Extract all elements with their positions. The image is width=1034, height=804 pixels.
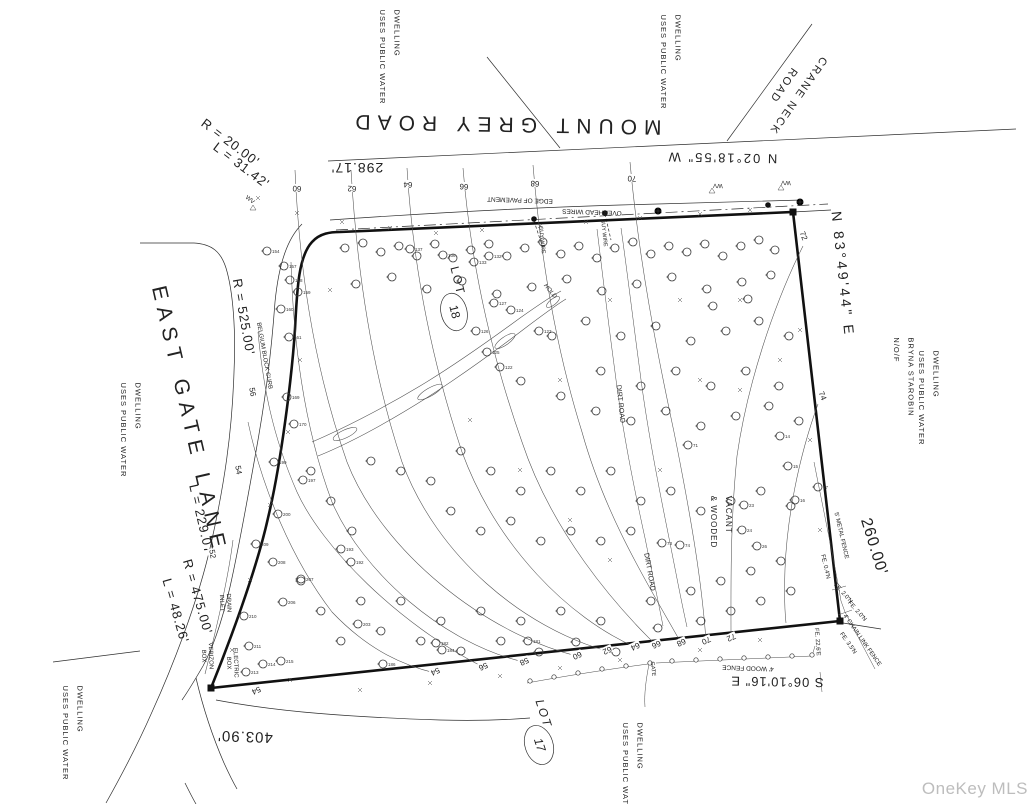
tree-symbol	[676, 541, 684, 549]
tree-symbol	[485, 252, 493, 260]
tree-symbol	[503, 252, 511, 260]
tree-symbol	[667, 487, 675, 495]
tree-symbol	[709, 302, 717, 310]
watermark: OneKey MLS	[922, 778, 1028, 800]
spot-elevation-x	[698, 378, 702, 382]
tree-symbol	[457, 647, 465, 655]
tree-symbol	[477, 527, 485, 535]
tree-symbol	[537, 537, 545, 545]
tree-symbol	[297, 577, 305, 585]
tree-tag-number: 207	[306, 577, 314, 582]
tree-symbol	[277, 657, 285, 665]
tree-symbol	[285, 333, 293, 341]
tree-tag-number: 127	[499, 301, 507, 306]
tree-symbol	[753, 542, 761, 550]
tree-symbol	[703, 285, 711, 293]
tree-tag-number: 170	[299, 422, 307, 427]
tree-symbol	[496, 363, 504, 371]
vacant-wooded-label: VACANT & WOODED	[706, 496, 736, 548]
tree-tag-number: 214	[268, 662, 276, 667]
tree-tag-number: 203	[363, 622, 371, 627]
tree-tag-number: 132	[494, 254, 502, 259]
tree-symbol	[367, 457, 375, 465]
tree-symbol	[487, 467, 495, 475]
swale-blob	[493, 331, 517, 351]
bearing-south-line: S 06°10'16" E	[730, 672, 824, 691]
contour-line-66	[463, 168, 656, 645]
tree-symbol	[277, 305, 285, 313]
tree-symbol	[742, 367, 750, 375]
tree-symbol	[432, 639, 440, 647]
tree-symbol	[467, 246, 475, 254]
spot-elevation-x	[568, 518, 572, 522]
tree-symbol	[547, 467, 555, 475]
fence-post	[790, 654, 794, 658]
tree-symbol	[740, 501, 748, 509]
spot-elevation-x	[428, 681, 432, 685]
street-label-mount-grey-road: MOUNT GREY ROAD	[348, 108, 662, 141]
wood-fence-label: 4' WOOD FENCE	[722, 662, 774, 672]
spot-elevation-x	[295, 211, 299, 215]
tree-symbol	[771, 246, 779, 254]
tree-tag-number: 71	[693, 443, 699, 448]
tree-tag-number: 186	[388, 662, 396, 667]
tree-symbol	[777, 557, 785, 565]
tree-symbol	[377, 627, 385, 635]
contour-line-56	[258, 332, 483, 667]
tree-tag-number: 192	[356, 560, 364, 565]
tree-symbol	[732, 412, 740, 420]
tree-symbol	[662, 407, 670, 415]
tree-tag-number: 206	[288, 600, 296, 605]
tree-symbol	[485, 240, 493, 248]
tree-symbol	[755, 236, 763, 244]
tree-symbol	[470, 258, 478, 266]
tree-symbol	[647, 597, 655, 605]
spot-elevation-x	[558, 666, 562, 670]
tree-symbol	[557, 392, 565, 400]
tree-symbol	[658, 539, 666, 547]
spot-elevation-x	[358, 688, 362, 692]
tree-symbol	[359, 239, 367, 247]
tree-symbol	[535, 327, 543, 335]
tree-symbol	[497, 637, 505, 645]
tree-symbol	[593, 254, 601, 262]
tree-symbol	[447, 507, 455, 515]
tree-tag-number: 122	[505, 365, 513, 370]
electric-box-label: ELECTRIC BOX	[223, 648, 238, 678]
tree-symbol	[341, 244, 349, 252]
tree-symbol	[597, 617, 605, 625]
tree-symbol	[423, 285, 431, 293]
tree-tag-number: 124	[516, 308, 524, 313]
fence-post	[552, 675, 556, 679]
tree-tag-number: 209	[261, 542, 269, 547]
survey-map: 1541571581591601611691701991972002092082…	[0, 0, 1034, 804]
tree-symbol	[524, 637, 532, 645]
tree-symbol	[597, 367, 605, 375]
contour-line-60	[295, 170, 577, 656]
tree-tag-number: 16	[800, 498, 806, 503]
tree-symbol	[697, 422, 705, 430]
tree-symbol	[397, 467, 405, 475]
tree-symbol	[672, 367, 680, 375]
tree-symbol	[701, 240, 709, 248]
contour-elevation-label: 64	[402, 180, 413, 189]
fence-post	[528, 679, 532, 683]
spot-elevation-x	[558, 378, 562, 382]
tree-symbol	[379, 660, 387, 668]
dimension-road-frontage: 298.17'	[331, 159, 384, 177]
tree-tag-number: 200	[283, 512, 291, 517]
tree-symbol	[814, 483, 822, 491]
tree-symbol	[507, 306, 515, 314]
tree-symbol	[575, 242, 583, 250]
tree-tag-number: 123	[544, 329, 552, 334]
tree-symbol	[717, 577, 725, 585]
tree-symbol	[757, 597, 765, 605]
tree-symbol	[299, 476, 307, 484]
lot17-division-line	[216, 700, 530, 720]
contour-line-54	[248, 422, 435, 673]
corner-monuments	[208, 209, 844, 692]
tree-symbol	[263, 247, 271, 255]
tree-symbol	[652, 322, 660, 330]
tree-symbol	[627, 417, 635, 425]
tree-tag-number: 161	[294, 335, 302, 340]
tree-symbol	[348, 527, 356, 535]
spot-elevation-x	[738, 298, 742, 302]
tree-symbol	[437, 617, 445, 625]
contour-elevation-label: 56	[247, 386, 257, 398]
tree-symbol	[637, 497, 645, 505]
corner-monument	[790, 209, 797, 216]
tree-symbol	[597, 537, 605, 545]
dwelling-note-top-mid: DWELLING USES PUBLIC WATER	[656, 15, 685, 110]
fence-post	[624, 664, 628, 668]
tree-symbol	[337, 637, 345, 645]
tree-symbol	[787, 587, 795, 595]
spot-elevation-x	[808, 438, 812, 442]
tree-symbol	[683, 248, 691, 256]
spot-elevation-x	[798, 328, 802, 332]
tree-symbol	[557, 250, 565, 258]
bearing-north-line: N 02°18'55" W	[667, 148, 778, 167]
wood-fence-line	[527, 664, 648, 683]
tree-tag-number: 15	[793, 464, 799, 469]
tree-tag-number: 182	[441, 641, 449, 646]
spot-elevation-x	[738, 388, 742, 392]
dirt-road-edge-west	[597, 229, 663, 626]
tree-symbol	[259, 660, 267, 668]
tree-tag-number: 197	[308, 478, 316, 483]
tree-symbol	[290, 420, 298, 428]
spot-elevation-x	[256, 196, 260, 200]
tree-symbol	[697, 617, 705, 625]
tree-symbol	[577, 487, 585, 495]
water-valve-label-2: WV	[713, 180, 723, 188]
tree-symbol	[647, 250, 655, 258]
dwelling-note-left: DWELLING USES PUBLIC WATER	[116, 383, 145, 478]
tree-symbol	[252, 540, 260, 548]
spot-elevation-x	[748, 208, 752, 212]
contour-elevation-label: 60	[291, 184, 302, 193]
tree-symbol	[567, 527, 575, 535]
tree-symbol	[490, 299, 498, 307]
swale-blob	[416, 382, 444, 403]
tree-tag-number: 154	[272, 249, 280, 254]
tree-symbol	[270, 458, 278, 466]
utility-pole	[765, 202, 771, 208]
dwelling-note-right: DWELLING USES PUBLIC WATER	[914, 351, 943, 446]
tree-tag-number: 181	[533, 639, 541, 644]
tree-symbol	[327, 497, 335, 505]
tree-symbol	[738, 278, 746, 286]
fence-post	[718, 657, 722, 661]
tree-symbol	[286, 276, 294, 284]
fence-post	[742, 656, 746, 660]
tree-symbol	[784, 462, 792, 470]
tree-symbol	[507, 517, 515, 525]
tree-symbol	[654, 624, 662, 632]
tree-symbol	[629, 238, 637, 246]
dimension-south-side: 403.90'	[217, 725, 273, 746]
tree-tag-number: 23	[749, 503, 755, 508]
tree-symbol	[431, 240, 439, 248]
tree-symbol	[617, 332, 625, 340]
spot-elevation-x	[608, 558, 612, 562]
tree-symbol	[707, 382, 715, 390]
tree-symbol	[582, 317, 590, 325]
dwelling-note-bottom-left: DWELLING USES PUBLIC WATER	[58, 686, 87, 781]
tree-symbol	[611, 244, 619, 252]
tree-symbol	[357, 597, 365, 605]
tree-symbol	[245, 642, 253, 650]
tree-symbol	[240, 612, 248, 620]
tree-symbol	[697, 507, 705, 515]
contour-line-70	[630, 162, 706, 641]
verizon-box-label: VERIZON BOX	[198, 642, 213, 669]
tree-tag-number: 193	[346, 547, 354, 552]
tree-symbol	[607, 467, 615, 475]
tree-tag-number: 157	[289, 264, 297, 269]
fence-post	[600, 667, 604, 671]
tree-symbol	[337, 545, 345, 553]
tree-symbol	[517, 487, 525, 495]
tree-symbol	[352, 280, 360, 288]
tree-symbol	[592, 407, 600, 415]
corner-monument	[208, 685, 215, 692]
utility-pole	[531, 216, 537, 222]
tree-symbol	[307, 467, 315, 475]
tree-symbol	[765, 402, 773, 410]
fence-post	[576, 671, 580, 675]
tree-symbol	[395, 242, 403, 250]
tree-symbol	[684, 441, 692, 449]
tree-symbol	[722, 327, 730, 335]
tree-symbol	[665, 242, 673, 250]
contour-line-72	[731, 246, 803, 638]
contour-line-62	[351, 170, 607, 651]
tree-symbol	[795, 417, 803, 425]
contour-elevation-label: 68	[529, 179, 540, 188]
tree-symbol	[719, 252, 727, 260]
swale-line-1	[312, 291, 561, 442]
spot-elevation-x	[618, 658, 622, 662]
lot-line-extension-ne	[793, 210, 831, 212]
gate-label: GATE	[648, 661, 657, 676]
tree-symbol	[738, 526, 746, 534]
tree-tag-number: 26	[762, 544, 768, 549]
tree-symbol	[517, 377, 525, 385]
water-valve-icon	[778, 185, 784, 190]
fence-post	[766, 655, 770, 659]
tree-symbol	[572, 638, 580, 646]
tree-symbol	[472, 327, 480, 335]
tree-tag-number: 73	[667, 541, 673, 546]
tree-symbol	[687, 337, 695, 345]
spot-elevation-x	[340, 220, 344, 224]
tree-tag-number: 137	[415, 247, 423, 252]
tree-symbol	[406, 245, 414, 253]
neighbor-label: N/O/F BRYNA STAROBIN	[889, 337, 918, 416]
spot-elevation-x	[818, 528, 822, 532]
tree-symbol	[521, 244, 529, 252]
spot-elevation-x	[480, 228, 484, 232]
dwelling-note-bottom-mid: DWELLING USES PUBLIC WATER	[618, 723, 647, 804]
spot-elevation-x	[468, 418, 472, 422]
contour-line-58	[291, 262, 524, 662]
tree-symbol	[687, 587, 695, 595]
tree-tag-number: 213	[251, 670, 259, 675]
tree-symbol	[775, 382, 783, 390]
tree-symbol	[791, 496, 799, 504]
tree-symbol	[637, 382, 645, 390]
tree-symbol	[279, 598, 287, 606]
tree-symbol	[417, 637, 425, 645]
tree-tag-number: 208	[278, 560, 286, 565]
tree-tag-number: 160	[286, 307, 294, 312]
swale-line-2	[318, 299, 566, 456]
spot-elevation-x	[518, 468, 522, 472]
tree-symbol	[439, 251, 447, 259]
tree-symbol	[483, 348, 491, 356]
spot-elevation-x	[608, 298, 612, 302]
tree-tag-number: 159	[303, 290, 311, 295]
fence-post	[670, 659, 674, 663]
tree-symbol	[528, 283, 536, 291]
tree-symbol	[269, 558, 277, 566]
tree-tag-number: 126	[481, 329, 489, 334]
dwelling-note-top-left: DWELLING USES PUBLIC WATER	[375, 10, 404, 105]
spot-elevation-x	[658, 468, 662, 472]
tree-symbol	[668, 273, 676, 281]
curb-fragment	[185, 783, 196, 804]
tree-symbol	[737, 242, 745, 250]
contour-elevation-label: 52	[207, 548, 217, 560]
spot-elevation-x	[778, 358, 782, 362]
tree-symbol	[377, 248, 385, 256]
tree-symbol	[633, 280, 641, 288]
tree-symbol	[747, 567, 755, 575]
tree-symbol	[744, 295, 752, 303]
spot-elevation-x	[434, 231, 438, 235]
tree-tag-number: 215	[286, 659, 294, 664]
tree-symbol	[493, 290, 501, 298]
tree-symbol	[297, 575, 305, 583]
tree-symbol	[438, 646, 446, 654]
tree-symbol	[627, 527, 635, 535]
tree-symbol	[427, 477, 435, 485]
spot-elevation-marks	[230, 196, 822, 692]
tree-tag-number: 24	[747, 528, 753, 533]
tree-symbol	[785, 332, 793, 340]
spot-elevation-x	[758, 638, 762, 642]
driveway-spur	[53, 651, 140, 662]
tree-symbol	[388, 273, 396, 281]
tree-tag-number: 74	[685, 543, 691, 548]
tree-symbol	[517, 617, 525, 625]
tree-tag-number: 14	[785, 434, 791, 439]
tree-tag-number: 17	[823, 485, 829, 490]
tree-tag-number: 211	[254, 644, 262, 649]
contour-elevation-label: 54	[233, 464, 243, 476]
tree-tag-number: 169	[292, 395, 300, 400]
fence-post	[694, 658, 698, 662]
tree-tag-number: 210	[249, 614, 257, 619]
contour-elevation-label: 66	[458, 182, 469, 191]
tree-tag-number: 125	[492, 350, 500, 355]
spot-elevation-x	[678, 298, 682, 302]
spot-elevation-x	[698, 648, 702, 652]
tree-symbol	[757, 487, 765, 495]
spot-elevation-x	[498, 674, 502, 678]
tree-symbol	[755, 317, 763, 325]
tree-tag-number: 133	[479, 260, 487, 265]
tree-symbol	[563, 275, 571, 283]
water-valve-icon	[709, 188, 715, 193]
contour-elevation-label: 70	[626, 174, 637, 183]
tree-symbol	[317, 607, 325, 615]
spot-elevation-x	[286, 430, 290, 434]
tree-tag-number: 199	[279, 460, 287, 465]
tree-symbol	[354, 620, 362, 628]
tree-symbol	[242, 668, 250, 676]
tree-symbol	[557, 607, 565, 615]
drain-inlet-label: DRAIN INLET	[216, 593, 231, 612]
tagged-tree-symbols: 1541571581591601611691701991972002092082…	[238, 245, 829, 676]
tree-symbol	[397, 597, 405, 605]
contour-elevation-label: 62	[346, 184, 357, 193]
tree-symbol	[347, 558, 355, 566]
tree-symbol	[767, 271, 775, 279]
tree-symbol	[776, 432, 784, 440]
tree-tag-number: 136	[448, 253, 456, 258]
dirt-road-edge-east	[621, 228, 687, 627]
tree-symbol	[413, 252, 421, 260]
tree-tag-number: 158	[295, 278, 303, 283]
water-valve-label-3: WV	[781, 177, 791, 185]
spot-elevation-x	[328, 288, 332, 292]
tree-tag-number: 184	[447, 648, 455, 653]
